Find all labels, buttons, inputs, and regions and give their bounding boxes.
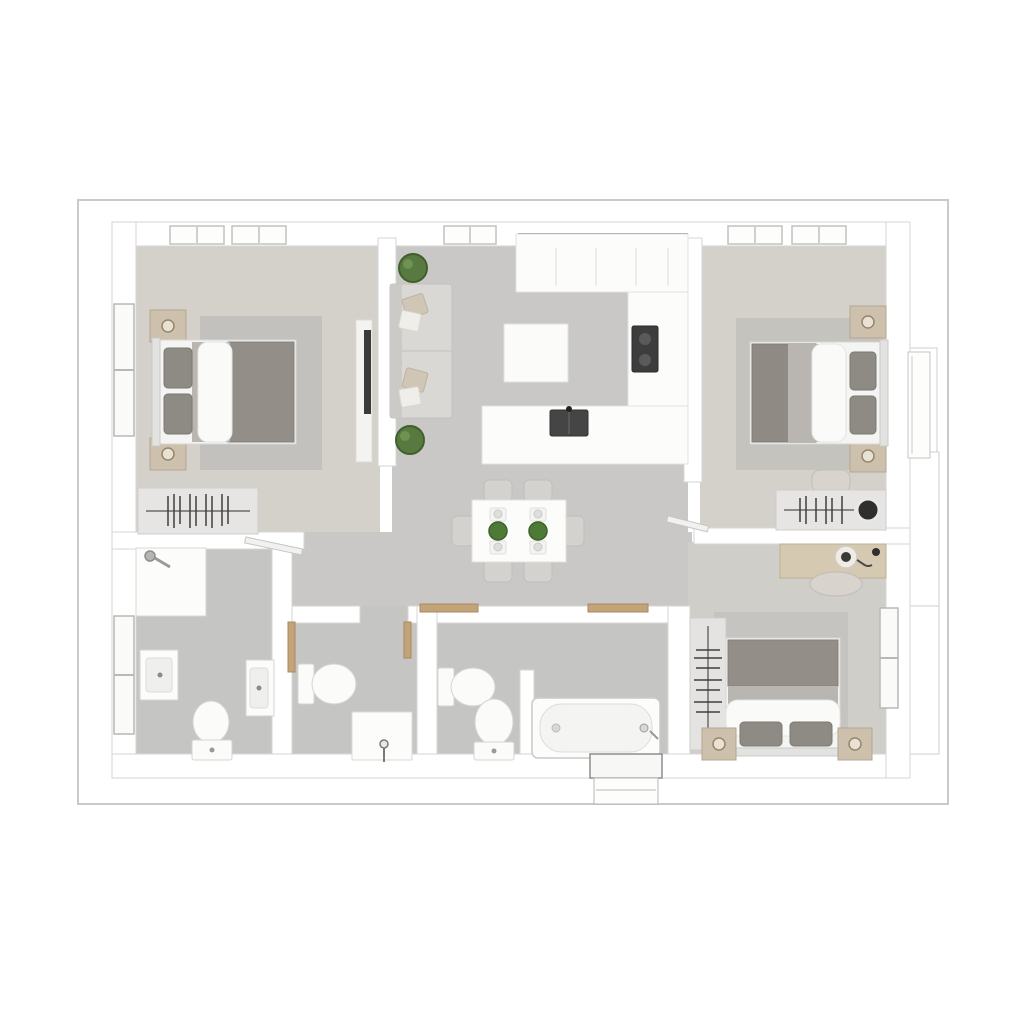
desk-chair-bedroom3 xyxy=(810,572,862,596)
shower-head xyxy=(145,551,155,561)
bed1-duvet xyxy=(198,342,232,442)
toilet-bathroom1-button xyxy=(210,748,215,753)
bed3-pillow-right xyxy=(790,722,832,746)
plate-bottom-right xyxy=(534,543,542,551)
floor-plan-svg xyxy=(0,0,1024,1024)
bathtub-drain xyxy=(552,724,560,732)
plant-living-bottom xyxy=(396,426,424,454)
bench-bedroom2 xyxy=(812,470,850,492)
plant-dining-2 xyxy=(529,522,547,540)
cooktop-burner-2 xyxy=(639,354,651,366)
bed3-blanket xyxy=(728,640,838,686)
wall-bath3-bedroom3 xyxy=(668,606,690,754)
dining-chair-bottom-right xyxy=(524,560,552,582)
door-bathroom3-leaf xyxy=(404,622,411,658)
nightstand-bedroom3-right-knob xyxy=(849,738,861,750)
entry-door-frame xyxy=(590,754,662,778)
cooktop-burner-1 xyxy=(639,333,651,345)
vanity-bathroom2-fixture xyxy=(380,740,388,748)
plant-living-bottom-highlight xyxy=(400,431,410,441)
toilet-bathroom2-bowl xyxy=(312,664,356,704)
dining-chair-left xyxy=(452,516,474,546)
plant-dining-1 xyxy=(489,522,507,540)
kitchen-island xyxy=(504,324,568,382)
plant-living-top xyxy=(399,254,427,282)
bed1-pillow-top xyxy=(164,348,192,388)
bed1-blanket xyxy=(228,342,294,442)
plate-top-left xyxy=(494,510,502,518)
wall-bath2-bath3 xyxy=(417,606,437,754)
nightstand-bedroom1-bottom-knob xyxy=(162,448,174,460)
bathtub-faucet xyxy=(640,724,648,732)
tv-screen xyxy=(364,330,371,414)
sink-bathroom1-faucet xyxy=(158,673,163,678)
nightstand-bedroom3-left-knob xyxy=(713,738,725,750)
bed1-pillow-bottom xyxy=(164,394,192,434)
kitchen-faucet xyxy=(566,406,572,412)
floor-plan-screenshot xyxy=(0,0,1024,1024)
dining-chair-top-left xyxy=(484,480,512,502)
bed1-headboard xyxy=(152,338,160,446)
toilet-bathroom3-bowl xyxy=(475,699,513,745)
bed2-pillow-top xyxy=(850,352,876,390)
door-bathroom3-panel-left xyxy=(420,604,478,612)
bed2-headboard xyxy=(880,340,888,446)
bed3-pillow-left xyxy=(740,722,782,746)
nightstand-bedroom2-top-knob xyxy=(862,316,874,328)
door-bathroom2-leaf xyxy=(288,622,295,672)
plate-bottom-left xyxy=(494,543,502,551)
bed2-duvet xyxy=(812,344,846,442)
dining-chair-top-right xyxy=(524,480,552,502)
desk-knob-item xyxy=(872,548,880,556)
toilet-bathroom1-bowl xyxy=(193,701,229,743)
plate-top-right xyxy=(534,510,542,518)
dining-chair-bottom-left xyxy=(484,560,512,582)
toilet-bathroom3-button xyxy=(492,749,497,754)
desk-record-center xyxy=(841,552,851,562)
entry-step xyxy=(594,778,658,804)
sofa-pillow-white-1 xyxy=(398,310,421,332)
kitchen-counter-top-run xyxy=(516,234,688,292)
vanity-bathroom2 xyxy=(352,712,412,760)
dining-table xyxy=(472,500,566,562)
sink2-bathroom1-faucet xyxy=(257,686,262,691)
bed3-headboard xyxy=(726,748,840,756)
nightstand-bedroom2-bottom-knob xyxy=(862,450,874,462)
nightstand-bedroom1-top-knob xyxy=(162,320,174,332)
plant-living-top-highlight xyxy=(403,259,413,269)
sofa-pillow-white-2 xyxy=(399,386,422,407)
door-bathroom3-panel-right xyxy=(588,604,648,612)
wardrobe-bedroom2-hatbox xyxy=(857,499,879,521)
bed2-pillow-bottom xyxy=(850,396,876,434)
